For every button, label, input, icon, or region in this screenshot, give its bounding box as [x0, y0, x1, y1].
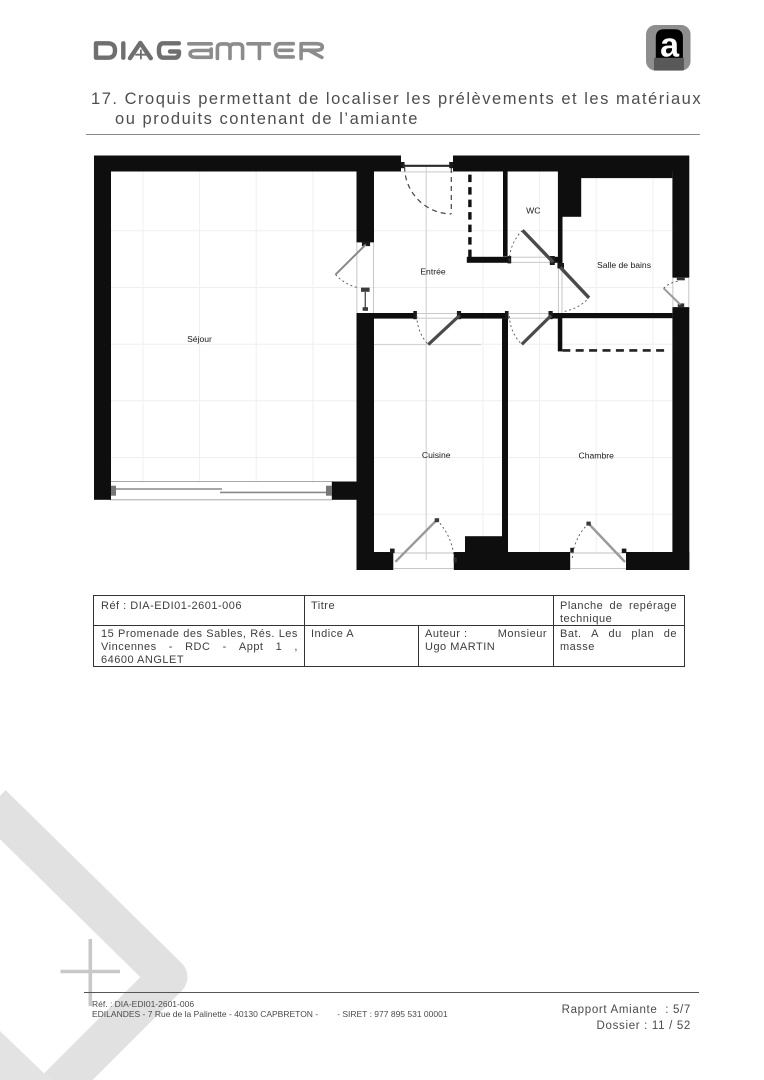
svg-text:Séjour: Séjour: [187, 334, 212, 344]
svg-text:Salle de bains: Salle de bains: [597, 260, 651, 270]
svg-text:Chambre: Chambre: [579, 451, 615, 461]
svg-text:Entrée: Entrée: [420, 267, 446, 277]
svg-text:WC: WC: [526, 205, 540, 215]
svg-text:a: a: [660, 26, 680, 64]
svg-text:Cuisine: Cuisine: [422, 450, 451, 460]
